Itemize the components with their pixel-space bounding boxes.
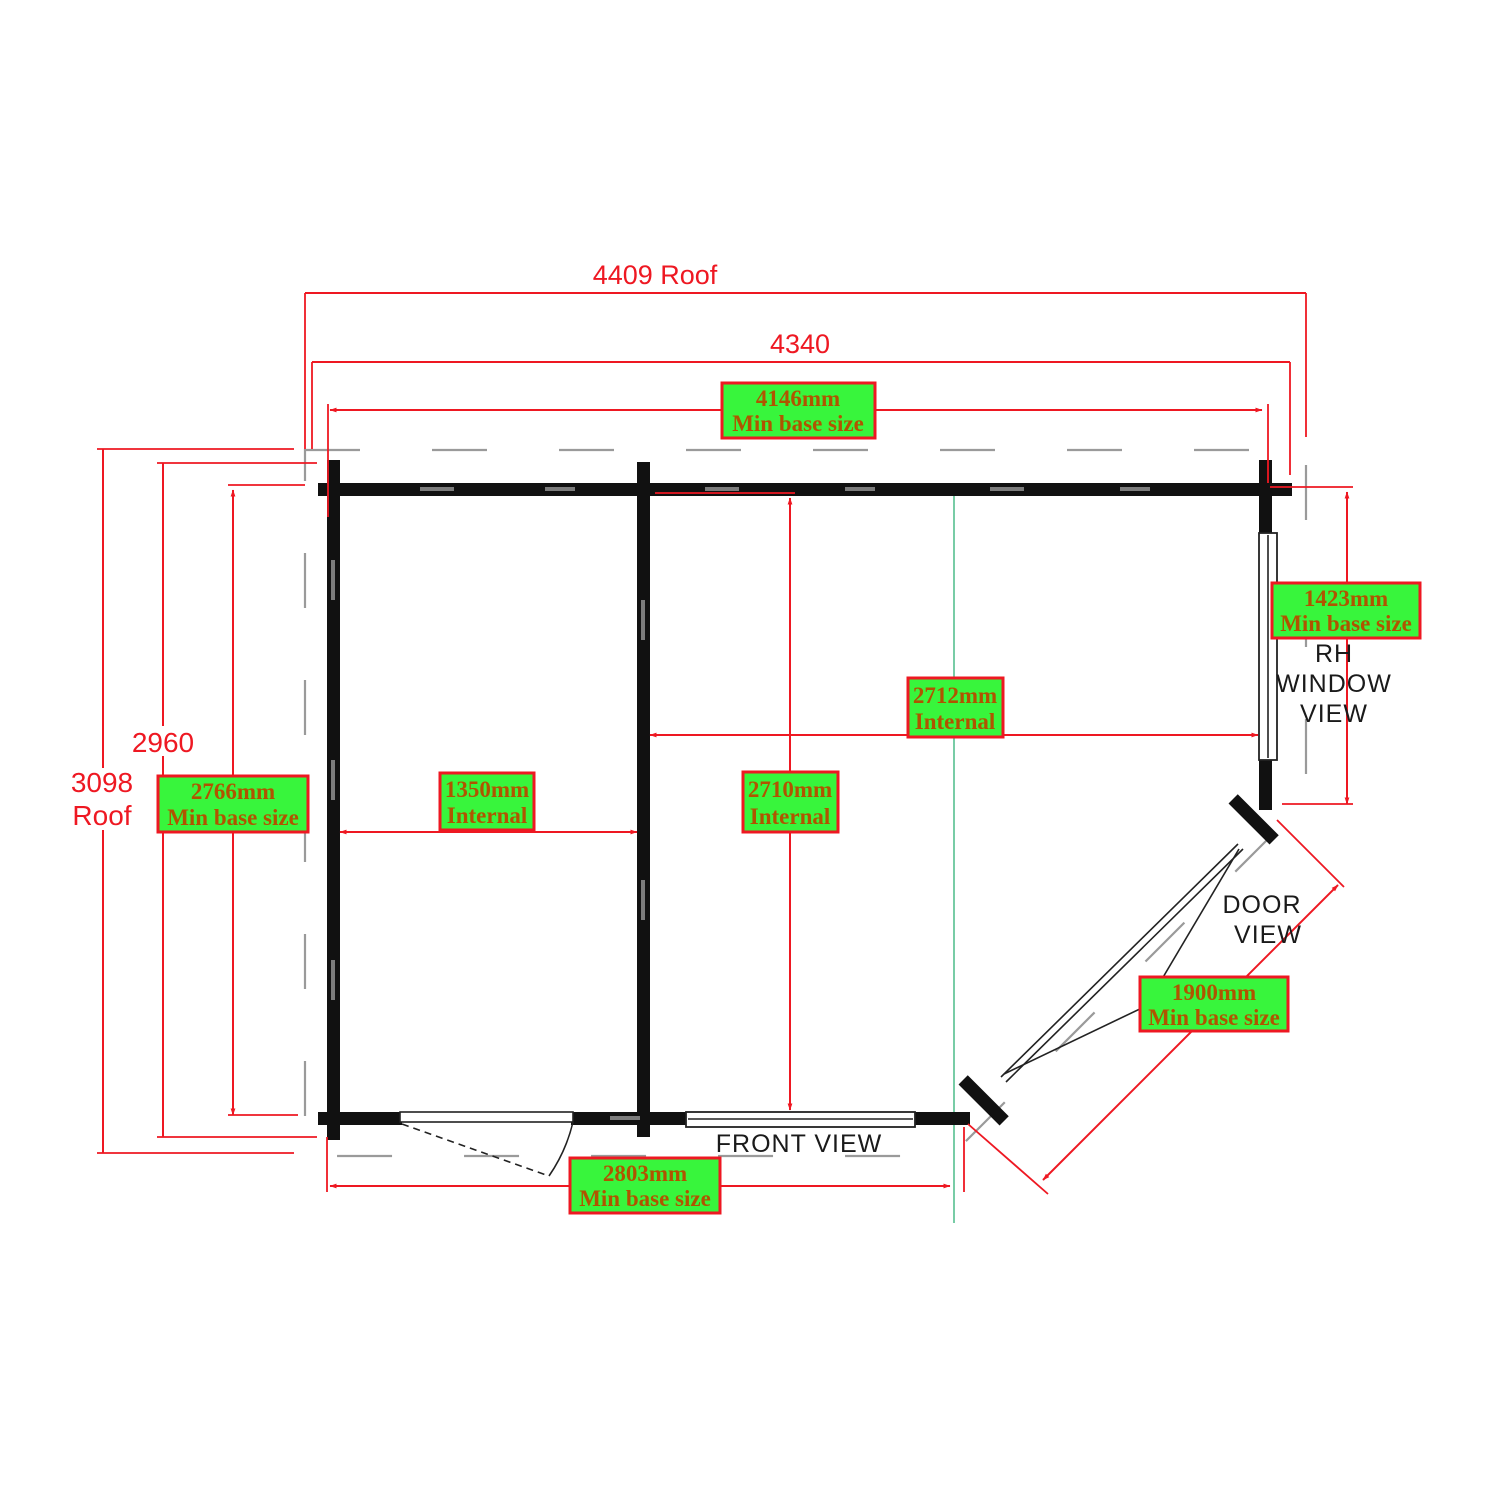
- green-box-window-side: 1423mm Min base size: [1272, 583, 1420, 638]
- bottom-wall-right: [913, 1112, 970, 1125]
- internal-left-value: 1350mm: [445, 777, 529, 802]
- door-view-label-1: DOOR: [1223, 891, 1302, 919]
- green-box-internal-width: 2712mm Internal: [908, 678, 1003, 737]
- right-wall-upper: [1259, 460, 1272, 535]
- green-box-internal-depth: 2710mm Internal: [743, 772, 838, 832]
- bottom-wall-left: [318, 1112, 402, 1125]
- dim-overall-width-label: 4340: [770, 329, 830, 359]
- green-box-base-depth: 2766mm Min base size: [158, 776, 308, 832]
- base-width-caption: Min base size: [732, 411, 864, 436]
- dim-roof-depth-label-2: Roof: [72, 800, 131, 831]
- door-view-label-2: VIEW: [1234, 921, 1302, 949]
- front-view-label: FRONT VIEW: [716, 1130, 882, 1158]
- internal-depth-caption: Internal: [750, 804, 831, 829]
- base-depth-caption: Min base size: [167, 805, 299, 830]
- front-base-caption: Min base size: [579, 1186, 711, 1211]
- base-depth-value: 2766mm: [191, 779, 275, 804]
- corner-door-leaf-inner: [1006, 849, 1243, 1082]
- partition-wall: [637, 462, 650, 1137]
- internal-width-value: 2712mm: [913, 683, 997, 708]
- green-box-base-width: 4146mm Min base size: [722, 383, 875, 438]
- green-box-internal-left: 1350mm Internal: [440, 773, 534, 830]
- corner-door-leaf-outer: [1001, 844, 1238, 1077]
- green-box-front-base: 2803mm Min base size: [570, 1158, 720, 1213]
- window-side-value: 1423mm: [1304, 586, 1388, 611]
- right-wall-lower: [1259, 758, 1272, 810]
- window-side-caption: Min base size: [1280, 611, 1412, 636]
- corner-door-leader-2: [1004, 1006, 1146, 1074]
- front-door-opening: [400, 1112, 573, 1122]
- dim-depth-label: 2960: [132, 727, 194, 758]
- internal-width-caption: Internal: [915, 709, 996, 734]
- dim-roof-depth-label-1: 3098: [71, 767, 133, 798]
- rh-window-view-label-1: RH: [1315, 640, 1353, 668]
- base-width-value: 4146mm: [756, 386, 840, 411]
- door-side-value: 1900mm: [1172, 980, 1256, 1005]
- dim-roof-width-label: 4409 Roof: [593, 260, 718, 290]
- front-base-value: 2803mm: [603, 1161, 687, 1186]
- rh-window-view-label-2: WINDOW: [1276, 670, 1392, 698]
- rh-window-view-label: RH WINDOW VIEW: [1276, 640, 1392, 728]
- internal-depth-value: 2710mm: [748, 777, 832, 802]
- front-door-leaf: [402, 1124, 549, 1176]
- floor-plan-diagram: 4409 Roof 4340 3098 Roof 2960: [0, 0, 1500, 1500]
- rh-window-view-label-3: VIEW: [1300, 700, 1368, 728]
- door-view-label: DOOR VIEW: [1223, 891, 1302, 949]
- door-side-caption: Min base size: [1148, 1005, 1280, 1030]
- plan-canvas: 4409 Roof 4340 3098 Roof 2960: [0, 0, 1500, 1500]
- green-box-door-side: 1900mm Min base size: [1140, 977, 1288, 1031]
- internal-left-caption: Internal: [447, 803, 528, 828]
